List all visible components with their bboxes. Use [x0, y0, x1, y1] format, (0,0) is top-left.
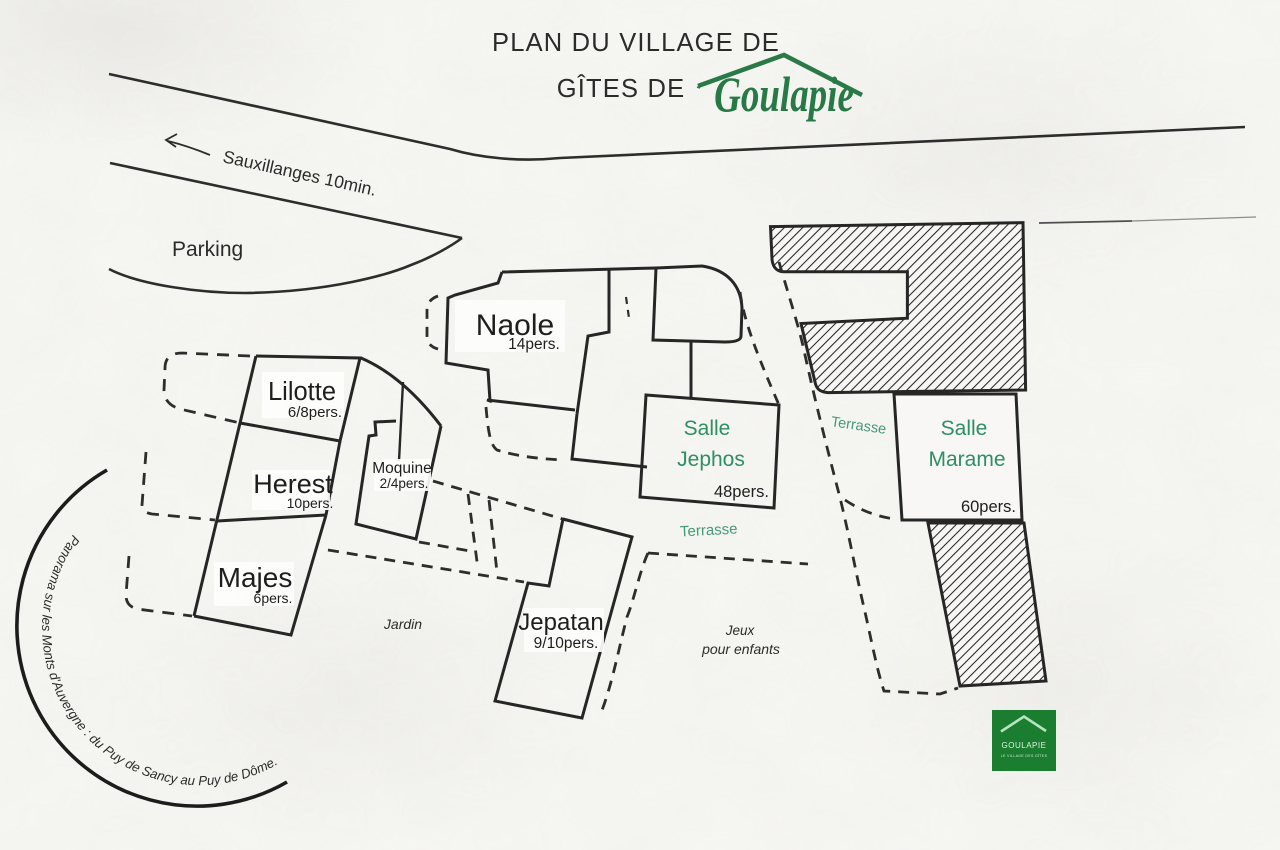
svg-text:Goulapie: Goulapie — [714, 67, 854, 123]
svg-text:Lilotte: Lilotte — [268, 378, 336, 406]
svg-text:6/8pers.: 6/8pers. — [288, 404, 342, 421]
svg-text:Jephos: Jephos — [677, 448, 745, 471]
svg-text:14pers.: 14pers. — [508, 336, 560, 353]
svg-text:Jepatan: Jepatan — [518, 609, 603, 636]
svg-text:10pers.: 10pers. — [287, 495, 334, 511]
svg-text:Salle: Salle — [684, 417, 731, 440]
svg-text:Moquine: Moquine — [372, 460, 431, 477]
svg-text:9/10pers.: 9/10pers. — [534, 635, 599, 652]
svg-text:GOULAPIE: GOULAPIE — [1002, 741, 1047, 750]
svg-text:Jeux: Jeux — [725, 623, 756, 638]
svg-text:Marame: Marame — [928, 448, 1005, 471]
svg-text:GÎTES DE: GÎTES DE — [557, 74, 686, 103]
svg-text:Parking: Parking — [172, 238, 243, 261]
svg-text:Majes: Majes — [218, 562, 293, 593]
svg-text:pour enfants: pour enfants — [701, 641, 780, 657]
svg-text:Terrasse: Terrasse — [680, 521, 738, 541]
svg-text:PLAN DU VILLAGE DE: PLAN DU VILLAGE DE — [492, 29, 780, 57]
svg-text:48pers.: 48pers. — [714, 483, 769, 501]
svg-text:Jardin: Jardin — [383, 616, 422, 632]
svg-text:60pers.: 60pers. — [961, 498, 1016, 516]
svg-text:Salle: Salle — [941, 417, 988, 440]
svg-text:2/4pers.: 2/4pers. — [380, 476, 429, 491]
svg-text:6pers.: 6pers. — [254, 590, 293, 606]
svg-text:LE VILLAGE DES GÎTES: LE VILLAGE DES GÎTES — [1001, 754, 1048, 758]
